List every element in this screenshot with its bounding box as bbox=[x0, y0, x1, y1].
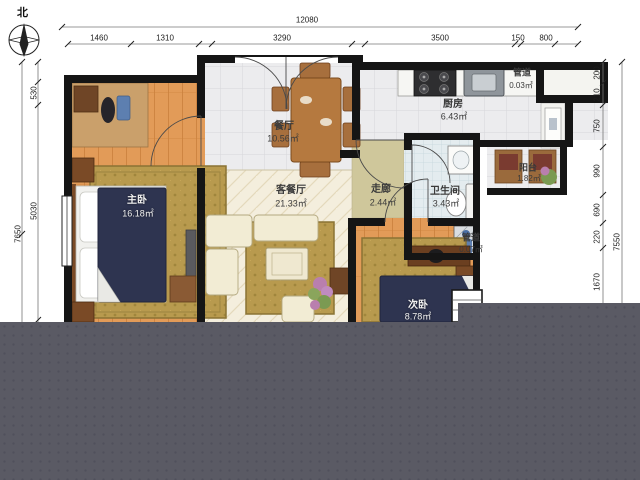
room-area-kitchen: 6.43㎡ bbox=[441, 113, 468, 122]
nightstand bbox=[72, 302, 94, 322]
armchair bbox=[282, 296, 314, 322]
dining-table bbox=[291, 78, 341, 162]
room-area-living-dining: 21.33㎡ bbox=[275, 200, 307, 209]
dim-right-3: 990 bbox=[593, 164, 602, 177]
side-table bbox=[330, 268, 350, 294]
plate-icon bbox=[300, 96, 312, 104]
room-label-balcony: 阳台 bbox=[519, 164, 537, 173]
tv-panel bbox=[186, 230, 196, 278]
compass-icon bbox=[9, 23, 39, 57]
dim-right-1: 210 bbox=[593, 88, 602, 101]
nightstand bbox=[72, 158, 94, 182]
dim-left-0: 530 bbox=[30, 86, 39, 99]
dim-top-3: 3500 bbox=[431, 34, 449, 43]
gray-cutoff-overlay bbox=[0, 322, 640, 480]
dim-right-4: 690 bbox=[593, 203, 602, 216]
sofa-seat bbox=[206, 249, 238, 295]
room-area-balcony: 1.82㎡ bbox=[517, 175, 541, 183]
room-area-duct-bath: 0.07㎡ bbox=[459, 246, 483, 254]
room-label-dining: 餐厅 bbox=[274, 122, 294, 132]
room-area-bedroom2: 8.78㎡ bbox=[405, 313, 432, 322]
dim-left-1: 5030 bbox=[30, 202, 39, 220]
room-label-master: 主卧 bbox=[127, 196, 147, 206]
stove-icon bbox=[414, 70, 456, 96]
room-label-duct-bath: 管道 bbox=[462, 234, 480, 243]
dim-right-5: 220 bbox=[593, 230, 602, 243]
sofa-corner bbox=[206, 215, 252, 247]
balcony-plant-flower bbox=[541, 167, 550, 176]
room-area-master: 16.18㎡ bbox=[122, 210, 154, 219]
dim-right-6: 1670 bbox=[593, 273, 602, 291]
dim-top-2: 3290 bbox=[273, 34, 291, 43]
floorplan-canvas: 主卧 16.18㎡ 餐厅 10.56㎡ 客餐厅 21.33㎡ 厨房 6.43㎡ … bbox=[0, 0, 640, 480]
dim-top-4: 150 bbox=[511, 34, 524, 43]
fridge-icon-detail bbox=[549, 118, 557, 130]
room-area-corridor: 2.44㎡ bbox=[370, 199, 397, 208]
dresser bbox=[170, 276, 196, 302]
room-label-duct-top: 管道 bbox=[513, 69, 531, 78]
dim-right-0: 200 bbox=[593, 66, 602, 79]
dim-right-2: 750 bbox=[593, 119, 602, 132]
dining-chair bbox=[300, 162, 330, 177]
room-area-duct-top: 0.03㎡ bbox=[509, 82, 533, 90]
dim-right-total: 7550 bbox=[613, 233, 622, 251]
jacket-icon bbox=[101, 97, 115, 123]
room-area-bathroom: 3.43㎡ bbox=[433, 200, 460, 209]
dim-top-1: 1310 bbox=[156, 34, 174, 43]
plate-icon bbox=[320, 118, 332, 126]
room-area-dining: 10.56㎡ bbox=[267, 135, 299, 144]
dim-top-0: 1460 bbox=[90, 34, 108, 43]
dining-chair bbox=[300, 63, 330, 78]
sofa bbox=[254, 215, 318, 241]
dim-top-5: 800 bbox=[539, 34, 552, 43]
dim-top-total: 12080 bbox=[296, 16, 318, 25]
room-label-bathroom: 卫生间 bbox=[430, 187, 460, 197]
dim-left-total: 7650 bbox=[14, 225, 23, 243]
north-label: 北 bbox=[17, 4, 28, 20]
sink-basin bbox=[453, 151, 469, 169]
room-label-corridor: 走廊 bbox=[371, 185, 391, 195]
storage-box bbox=[74, 86, 98, 112]
room-label-living-dining: 客餐厅 bbox=[276, 186, 306, 196]
room-label-bedroom2: 次卧 bbox=[408, 301, 428, 311]
room-label-kitchen: 厨房 bbox=[443, 100, 463, 110]
shirt-icon bbox=[117, 96, 130, 120]
